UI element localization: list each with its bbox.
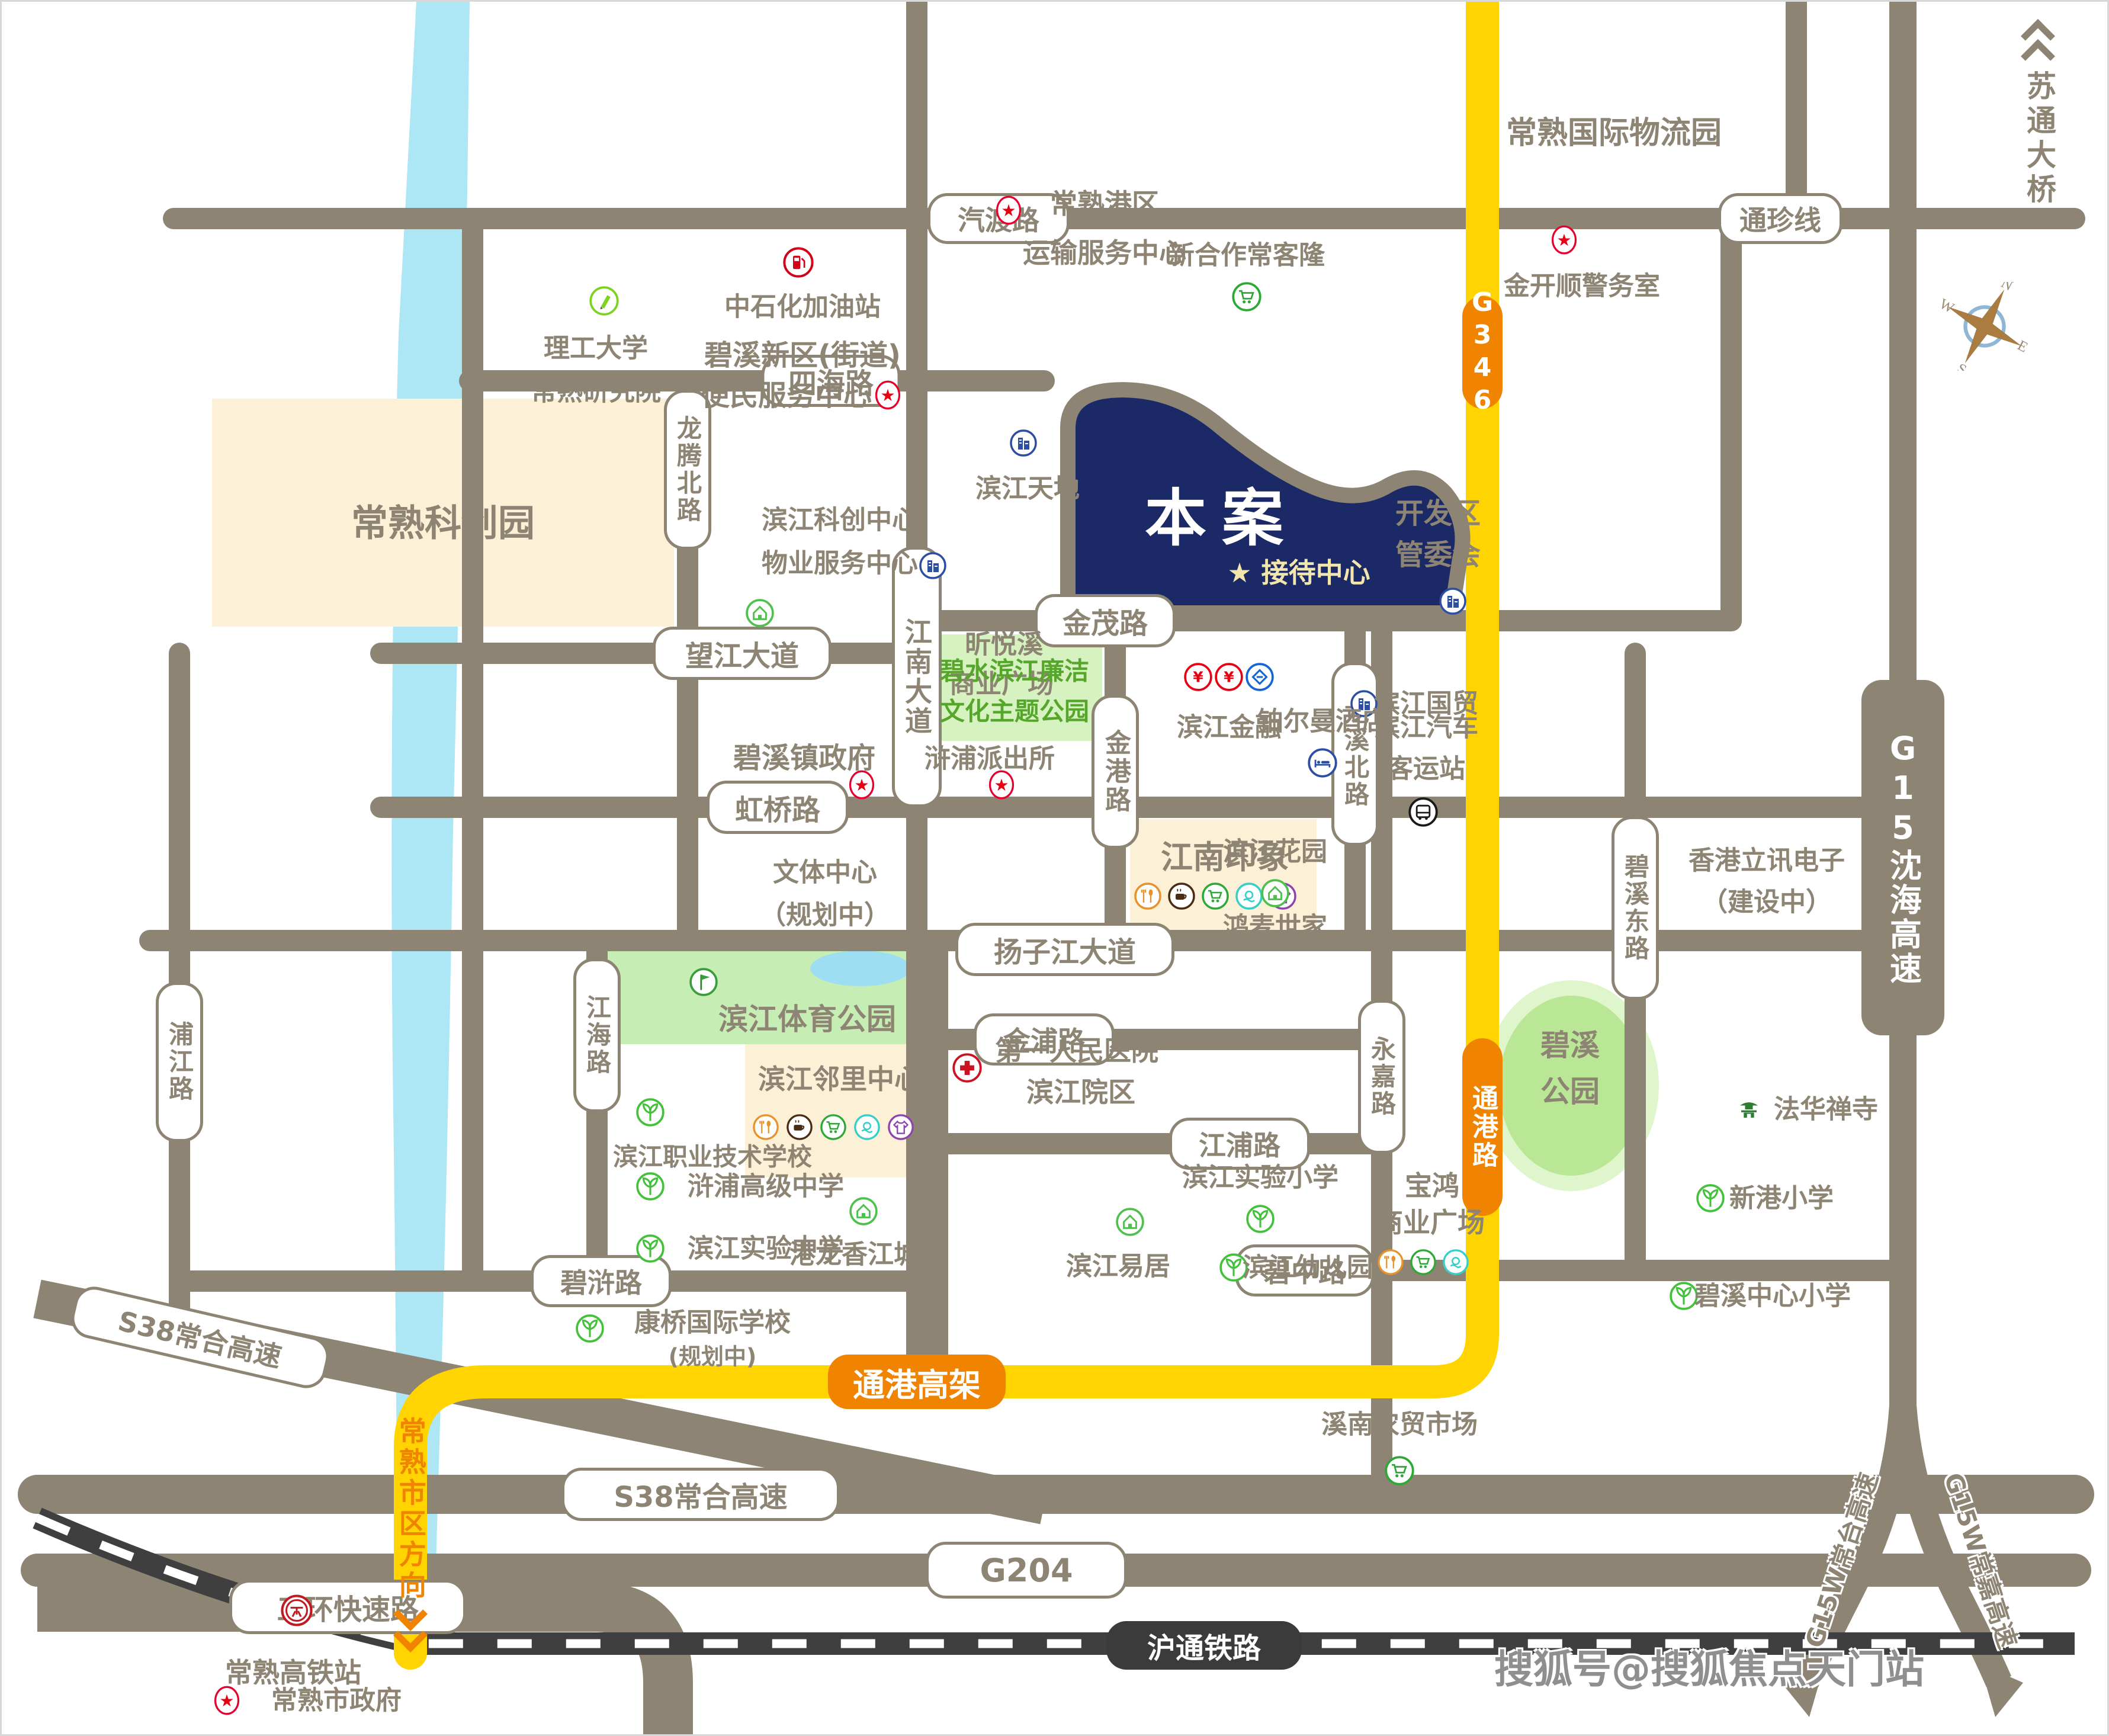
road-badge-jianghai: 江海路: [573, 958, 621, 1112]
school-sprout-icon: [635, 1172, 665, 1201]
landmark-xinanmarket-label: 溪南农贸市场: [1321, 1410, 1478, 1439]
landmark-bixipark-label: 碧溪: [1540, 1029, 1600, 1062]
landmark-bjshiyanxiao-label: 滨江实验小学: [1182, 1163, 1338, 1192]
house-icon: [745, 598, 775, 628]
landmark-kaifaqu-label: 管委会: [1395, 540, 1481, 572]
landmark-hospital-label: 第一人民医院: [995, 1036, 1158, 1067]
landmark-hupugaozhong-label: 浒浦高级中学: [688, 1172, 844, 1201]
landmark-bjzhiye-label: 滨江职业技术学校: [613, 1143, 812, 1170]
temple-icon: [1734, 1094, 1764, 1125]
flag-icon: [689, 967, 718, 997]
landmark-bixizhongxin-label: 碧溪中心小学: [1694, 1281, 1851, 1310]
project-name: 本案: [1145, 484, 1299, 553]
restaurant-icon: [1377, 1249, 1404, 1276]
cart-icon: [1384, 1455, 1415, 1486]
landmark-bjkeyun-label: 滨江汽车: [1374, 713, 1478, 742]
bank-icon: ¥: [1214, 662, 1244, 692]
landmark-xingangxiao-label: 新港小学: [1729, 1183, 1834, 1212]
landmark-hupupcs-label: 浒浦派出所: [925, 744, 1055, 773]
svg-text:¥: ¥: [1193, 668, 1203, 685]
landmark-bixigov-label: 碧溪镇政府: [733, 743, 875, 775]
landmark-bixipark-label: 公园: [1540, 1075, 1600, 1108]
road-badge-jingang: 金港路: [1092, 695, 1139, 849]
landmark-gaotie-label: 常熟高铁站: [225, 1658, 361, 1689]
landmark-zhongshihua-label: 中石化加油站: [724, 292, 881, 321]
road-badge-tongzhen: 通珍线: [1718, 193, 1842, 244]
cart-icon: [1231, 281, 1262, 312]
project-reception: ★ 接待中心: [1227, 558, 1370, 589]
entertainment-icon: [853, 1114, 881, 1141]
landmark-fahua-label: 法华禅寺: [1774, 1095, 1878, 1124]
school-sprout-icon: [635, 1234, 665, 1263]
landmark-bishui-label: 文化主题公园: [940, 697, 1089, 725]
house-icon: [1115, 1207, 1145, 1237]
pencil-icon: [589, 285, 619, 316]
road-badge-yangzi: 扬子江大道: [955, 923, 1174, 976]
landmark-bianmin-label: 便民服务中心: [701, 380, 872, 412]
cart-icon: [820, 1114, 847, 1141]
landmark-bjyoueryuan-label: 滨江幼儿园: [1243, 1253, 1373, 1282]
road-badge-longteng: 龙腾北路: [664, 390, 711, 550]
red-star-icon: ★: [872, 380, 903, 410]
road-badge-sanhuan: 三环快速路: [229, 1580, 466, 1634]
landmark-kechuangyuan-label: 常熟科创园: [351, 502, 535, 543]
road-badge-yongjia: 永嘉路: [1358, 1000, 1405, 1154]
house-icon: [1260, 878, 1290, 908]
reception-star-icon: ★: [1227, 557, 1251, 589]
restaurant-icon: [1134, 882, 1162, 910]
compass-n: N: [1998, 282, 2015, 294]
compass-s: S: [1954, 361, 1969, 371]
landmark-lixun-label: 香港立讯电子: [1689, 846, 1845, 875]
landmark-baohong-label: 商业广场: [1376, 1208, 1485, 1238]
landmark-hongmai-label: 鸿麦世家: [1223, 912, 1327, 941]
construction-bank-icon: [1245, 662, 1275, 692]
watermark: 搜狐号@搜狐焦点天门站: [1494, 1638, 1924, 1695]
red-star-icon: ★: [986, 769, 1017, 800]
red-star-icon: ★: [993, 195, 1024, 226]
landmark-bjhuayuan-label: 滨江花园: [1223, 837, 1327, 866]
landmark-bianmin-label: 碧溪新区(街道): [704, 340, 901, 372]
road-badge-g15: G15沈海高速: [1861, 680, 1944, 1035]
restaurant-icon: [752, 1114, 779, 1141]
bank-icon: ¥: [1183, 662, 1213, 692]
landmark-shizhengfu-label: 常熟市政府: [271, 1686, 402, 1715]
landmark-ligong-label: 常熟研究院: [531, 377, 661, 406]
road-badge-pujiang: 浦江路: [156, 982, 203, 1142]
landmark-sportpark-label: 滨江体育公园: [718, 1003, 896, 1036]
landmark-bkwuye-label: 物业服务中心: [762, 548, 918, 577]
landmark-hospital-label: 滨江院区: [1026, 1077, 1135, 1108]
entertainment-icon: [1442, 1249, 1469, 1276]
landmark-bishui-label: 碧水滨江廉洁: [940, 657, 1089, 685]
landmark-xinyuexi-label: 昕悦溪: [965, 630, 1043, 659]
road-badge-s38: S38常合高速: [561, 1468, 840, 1521]
landmark-boerman-label: 铂尔曼酒店: [1257, 707, 1388, 736]
landmark-gangqu-label: 常熟港区: [1050, 189, 1159, 220]
coffee-icon: [786, 1114, 813, 1141]
bridge-exit-label: 苏通大桥: [2023, 70, 2056, 208]
landmark-gangqu-label: 运输服务中心: [1023, 238, 1186, 269]
bus-icon: [1408, 797, 1439, 827]
road-badge-bixidong: 碧溪东路: [1612, 816, 1659, 1000]
hotel-bed-icon: [1307, 747, 1338, 778]
compass-e: E: [2015, 338, 2029, 356]
railway-station-icon: [280, 1594, 313, 1627]
school-sprout-icon: [1246, 1204, 1275, 1234]
landmark-bjtiandi-label: 滨江天地: [975, 474, 1080, 503]
landmark-kangqiao-label: (规划中): [669, 1344, 757, 1370]
road-badge-jinmao: 金茂路: [1035, 594, 1176, 647]
road-badge-hutong: 沪通铁路: [1106, 1621, 1302, 1670]
svg-text:★: ★: [880, 386, 895, 405]
reception-label: 接待中心: [1261, 557, 1370, 589]
landmark-ligong-label: 理工大学: [544, 333, 648, 362]
landmark-ganglong-label: 港龙香江城: [789, 1240, 920, 1269]
road-badge-hongqiao: 虹桥路: [707, 781, 849, 834]
cart-icon: [1410, 1249, 1437, 1276]
coffee-icon: [1167, 882, 1196, 910]
sport-park-pond: [810, 951, 911, 986]
entertainment-icon: [1235, 882, 1263, 910]
svg-text:★: ★: [219, 1691, 234, 1711]
compass-icon: N E S W: [1940, 282, 2029, 371]
landmark-baohong-label: 宝鸿: [1405, 1171, 1459, 1202]
road-badge-g204: G204: [926, 1542, 1127, 1599]
red-cross-icon: [952, 1052, 983, 1083]
school-sprout-icon: [1696, 1183, 1725, 1213]
house-icon: [849, 1196, 878, 1226]
landmark-wuliuyuan-label: 常熟国际物流园: [1506, 116, 1722, 150]
compass-w: W: [1940, 296, 1957, 317]
chang-shu-binjiang-location-map: 本案 ★ 接待中心 常熟市区方向 苏通大桥 N E S W G15W常台高速 G…: [0, 0, 2109, 1736]
landmark-bjkeyun-label: 客运站: [1387, 754, 1465, 783]
landmark-kaifaqu-label: 开发区: [1395, 498, 1481, 530]
landmark-jinkaishun-label: 金开顺警务室: [1504, 271, 1660, 300]
road-badge-g346: G346: [1462, 296, 1503, 409]
landmark-wenti-label: （规划中）: [760, 900, 890, 929]
landmark-bkwuye-label: 滨江科创中心: [762, 505, 918, 534]
direction-note: 常熟市区方向: [395, 1417, 426, 1602]
svg-text:★: ★: [994, 775, 1009, 795]
landmark-wenti-label: 文体中心: [773, 858, 877, 887]
red-star-icon: ★: [1549, 224, 1580, 255]
svg-text:★: ★: [854, 775, 869, 795]
gas-pump-icon: [782, 246, 814, 278]
shopping-icon: [887, 1114, 914, 1141]
svg-text:★: ★: [1001, 201, 1016, 220]
school-sprout-icon: [635, 1098, 665, 1127]
building-icon: [1009, 429, 1038, 457]
building-icon: [919, 551, 947, 580]
landmark-bjlinli-label: 滨江邻里中心: [758, 1064, 922, 1095]
landmark-lixun-label: （建设中）: [1702, 887, 1832, 916]
landmark-bjyiju-label: 滨江易居: [1066, 1252, 1170, 1281]
building-icon: [1439, 587, 1467, 615]
svg-text:¥: ¥: [1224, 668, 1234, 685]
svg-text:★: ★: [1556, 230, 1571, 250]
landmark-xinhezuo-label: 新合作常客隆: [1169, 240, 1325, 269]
school-sprout-icon: [575, 1314, 605, 1343]
landmark-kangqiao-label: 康桥国际学校: [634, 1308, 791, 1337]
road-badge-tonggang_gaojia: 通港高架: [828, 1355, 1006, 1409]
red-star-icon: ★: [211, 1685, 242, 1716]
road-badge-tonggang_lu: 通港路: [1462, 1038, 1503, 1216]
road-badge-wangjiang: 望江大道: [653, 627, 832, 680]
cart-icon: [1201, 882, 1230, 910]
